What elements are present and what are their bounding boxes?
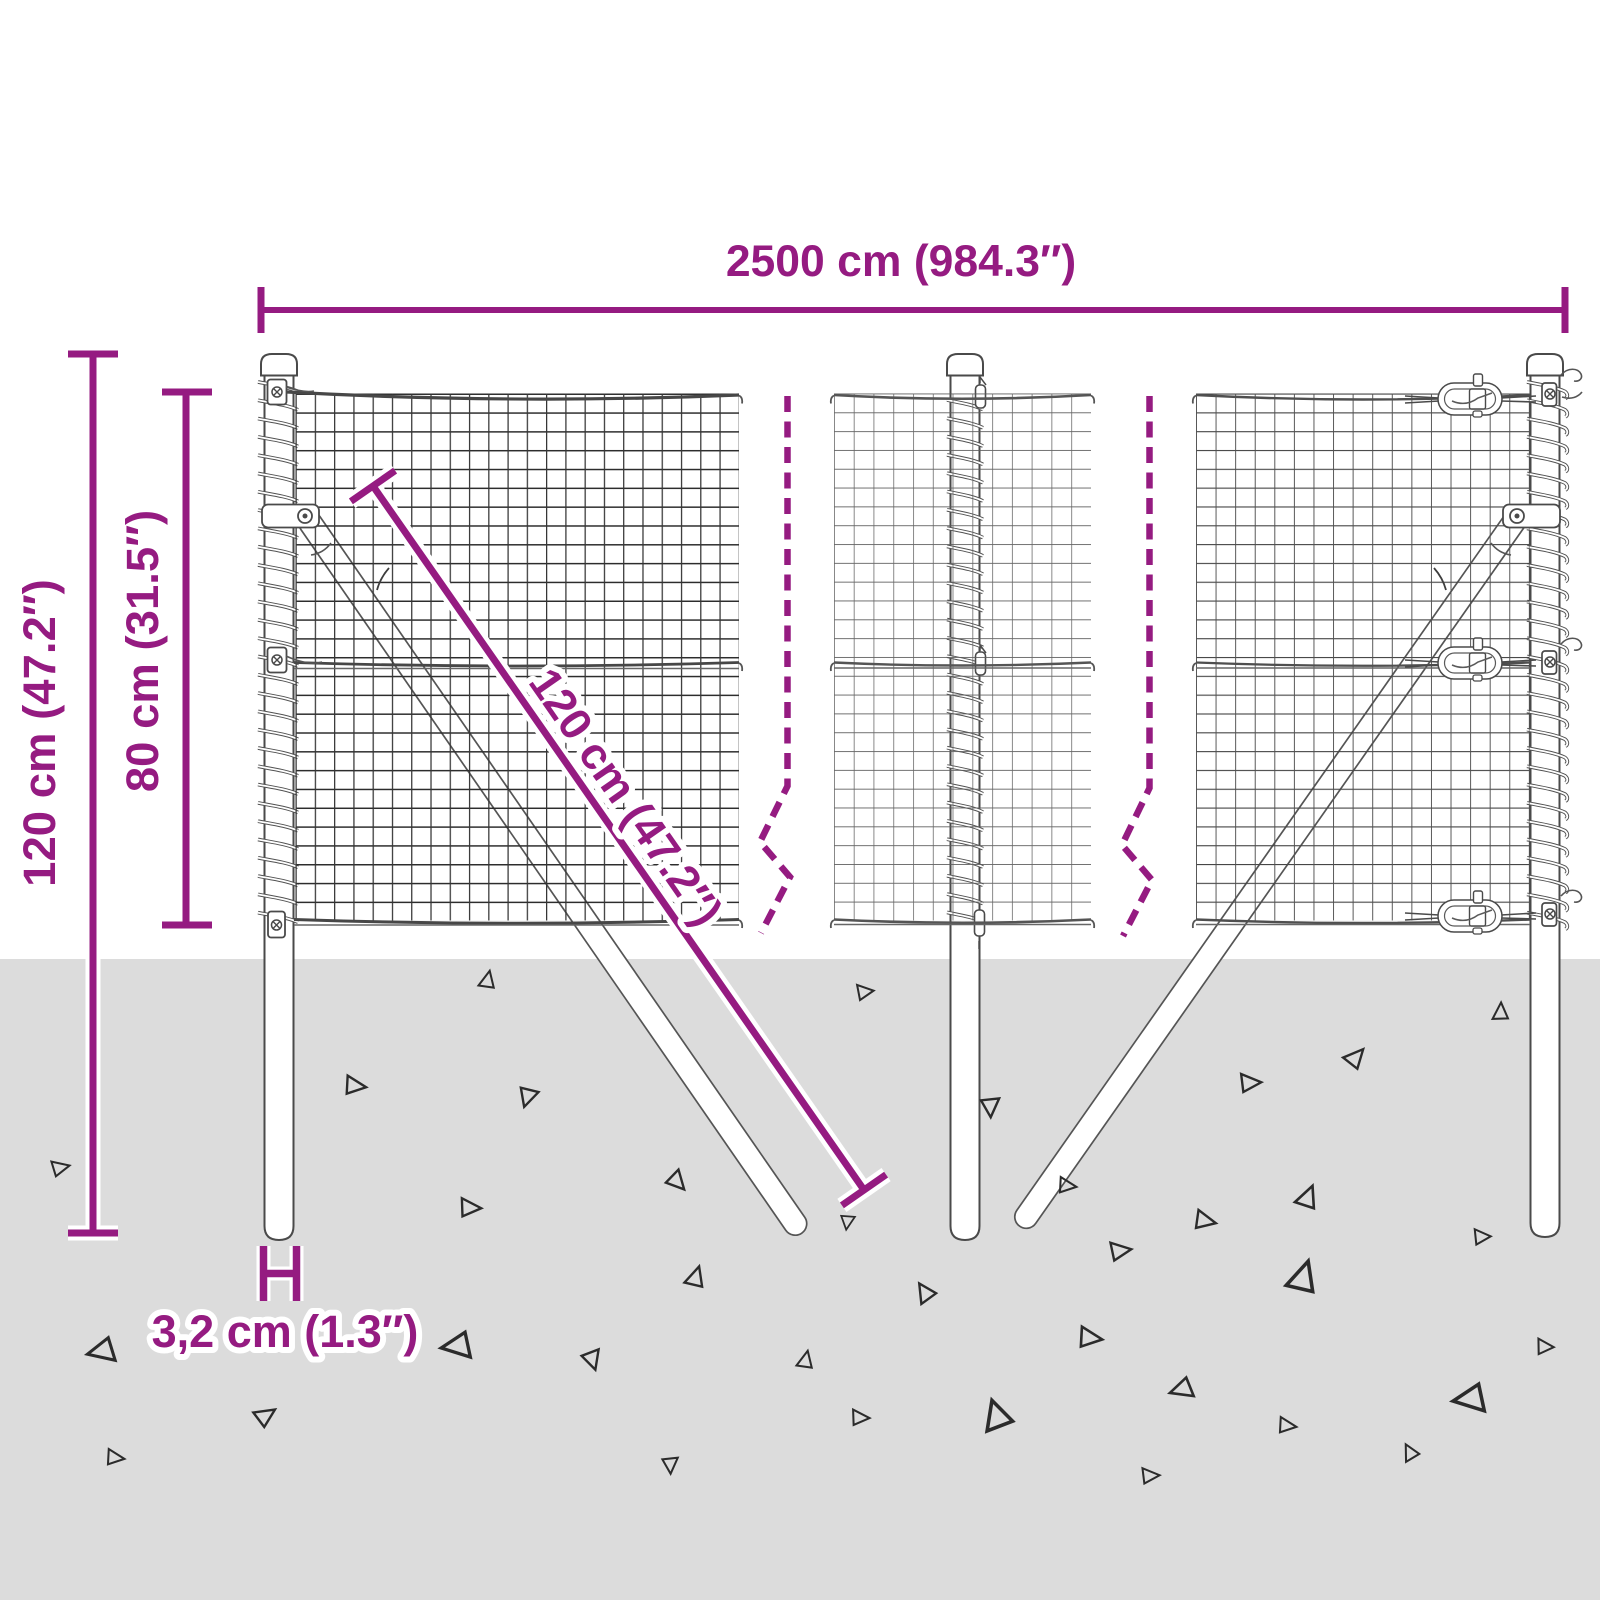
svg-text:3,2 cm (1.3″): 3,2 cm (1.3″): [152, 1306, 419, 1357]
svg-text:80 cm (31.5″): 80 cm (31.5″): [117, 510, 168, 792]
svg-text:2500 cm (984.3″): 2500 cm (984.3″): [726, 237, 1076, 286]
svg-text:120 cm (47.2″): 120 cm (47.2″): [14, 579, 65, 887]
